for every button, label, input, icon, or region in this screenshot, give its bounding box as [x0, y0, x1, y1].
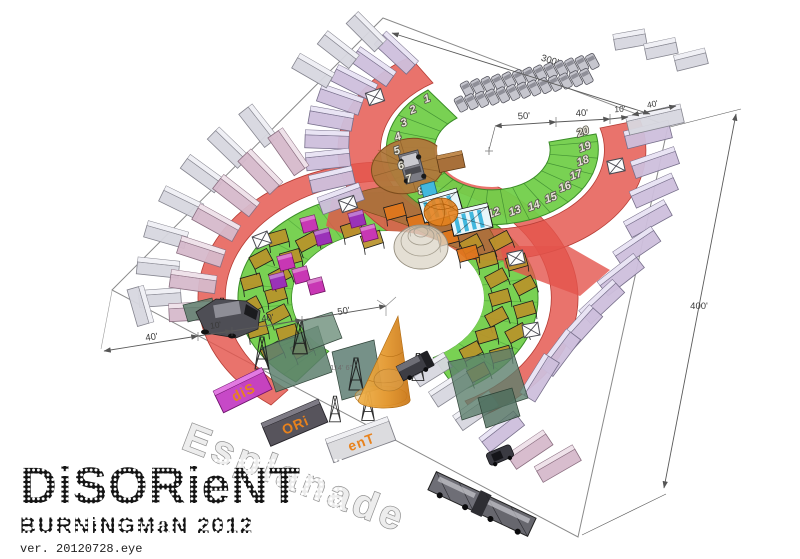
dim-container-40: 40'	[646, 98, 659, 110]
site-plan-page: Esplanade 1 2 3 4 5 6 7 8 9 10 11 12	[0, 0, 800, 559]
x-marker	[507, 250, 525, 266]
dim-u50: 50'	[517, 111, 530, 123]
dim-l40a: 40'	[145, 331, 159, 344]
container-box	[644, 37, 679, 59]
orange-dome	[424, 198, 458, 226]
art-cube	[277, 253, 295, 271]
version-label: ver. 20120728.eye	[20, 542, 301, 556]
camp-logo: DiSORieNT	[20, 460, 301, 511]
spire-height-label: 114' 6"	[330, 363, 353, 372]
dim-u40: 40'	[575, 108, 588, 120]
dim-l10: 10'	[209, 319, 222, 331]
dim-300: 300'	[540, 53, 560, 69]
dim-l50: 50'	[337, 305, 351, 318]
container-box	[673, 48, 708, 71]
event-title: BURNiNGMaN 2012	[20, 513, 301, 539]
dim-l40b: 40'	[261, 312, 275, 325]
dim-u10: 10'	[614, 104, 626, 115]
x-marker	[607, 158, 625, 174]
art-cube	[348, 210, 366, 228]
letter-container-ent: enT	[325, 417, 396, 463]
letter-container-ori: ORi	[261, 399, 328, 446]
art-cube	[300, 215, 318, 233]
container-box	[613, 29, 647, 50]
gray-dome	[394, 225, 448, 269]
dim-400: 400'	[690, 301, 708, 312]
art-cube	[269, 272, 287, 290]
art-cube	[314, 228, 332, 246]
art-cube	[307, 277, 325, 295]
container-box	[305, 130, 350, 150]
container-box	[292, 53, 335, 88]
x-marker	[522, 322, 540, 338]
title-block: DiSORieNT BURNiNGMaN 2012 ver. 20120728.…	[20, 460, 301, 556]
art-cube	[360, 224, 378, 242]
